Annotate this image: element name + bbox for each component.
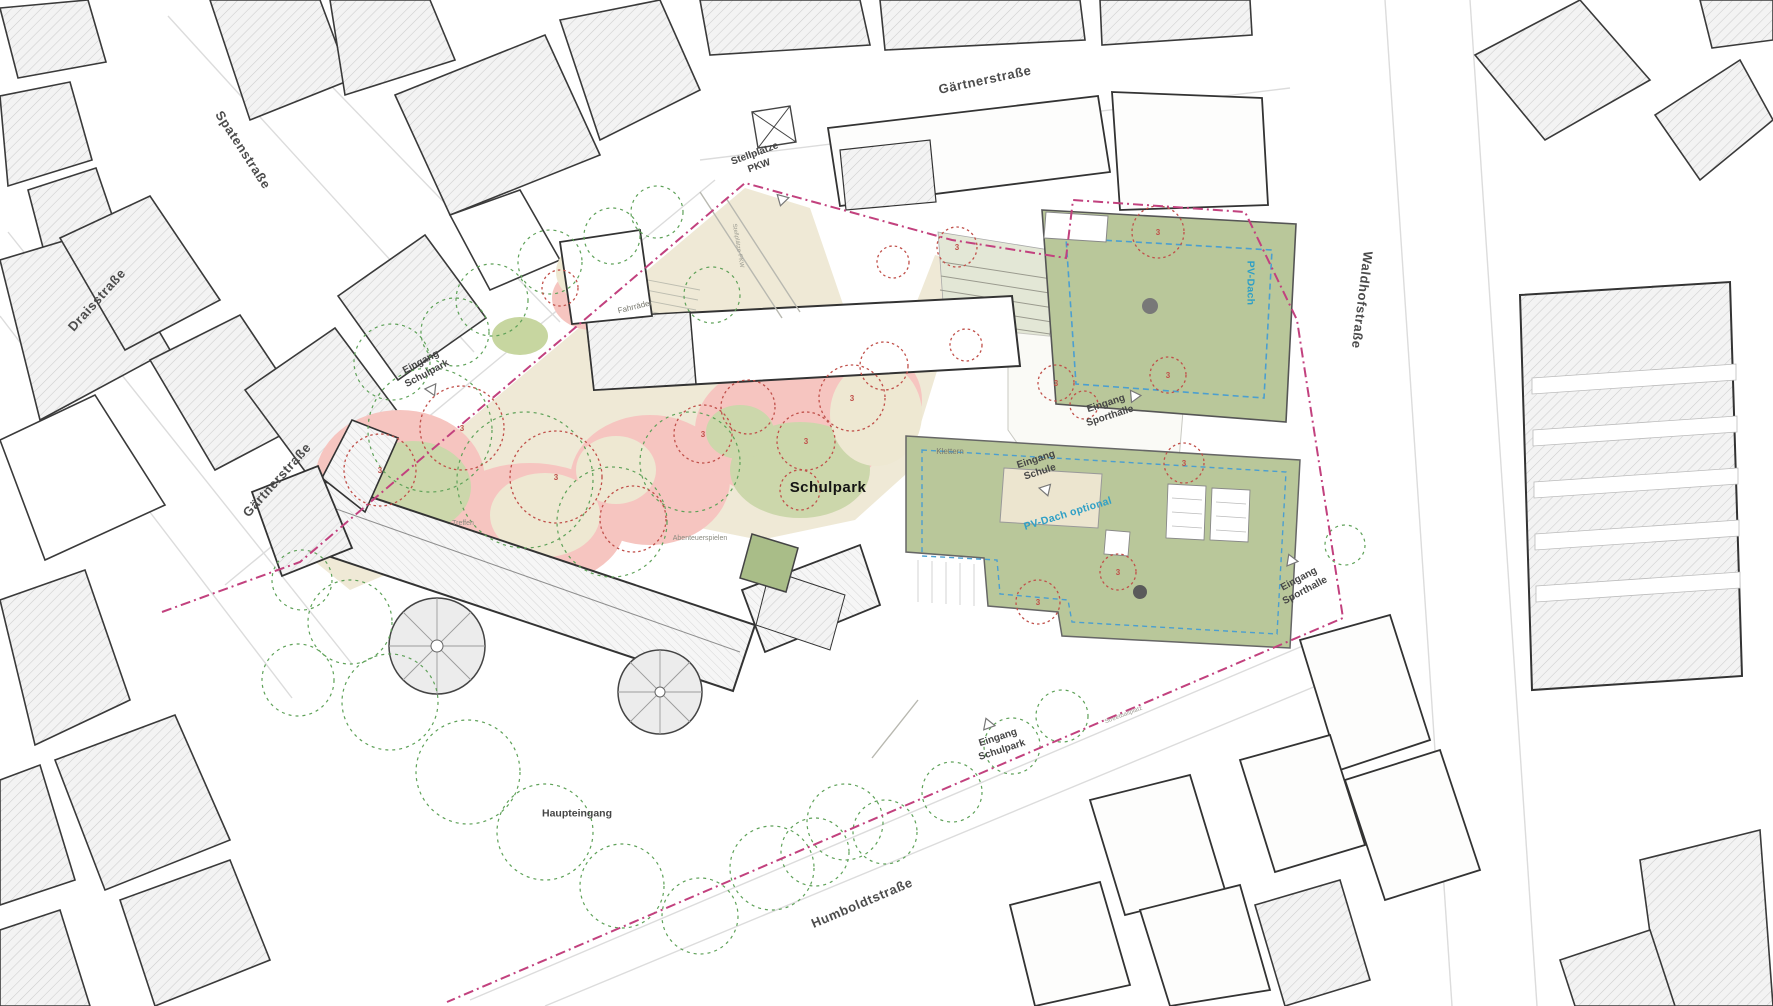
svg-text:3: 3 bbox=[850, 394, 855, 403]
svg-text:3: 3 bbox=[1182, 459, 1187, 468]
svg-text:3: 3 bbox=[1054, 379, 1059, 388]
parking-marks bbox=[918, 560, 974, 606]
school-west-wing bbox=[586, 312, 696, 390]
svg-text:3: 3 bbox=[1166, 371, 1171, 380]
sporthalle-building bbox=[1042, 210, 1296, 422]
svg-text:3: 3 bbox=[378, 466, 383, 475]
svg-text:3: 3 bbox=[701, 430, 706, 439]
svg-text:3: 3 bbox=[1036, 598, 1041, 607]
svg-text:3: 3 bbox=[955, 243, 960, 252]
site-plan-canvas: 3 3 3 3 3 3 3 3 3 3 3 3 3 Spatenstraße D… bbox=[0, 0, 1773, 1006]
green-roof-building bbox=[906, 436, 1300, 648]
svg-text:3: 3 bbox=[804, 437, 809, 446]
svg-text:3: 3 bbox=[1156, 228, 1161, 237]
small-structure bbox=[752, 106, 796, 148]
pavilion-roof-west bbox=[389, 598, 485, 694]
svg-text:3: 3 bbox=[1116, 568, 1121, 577]
rooflight-building bbox=[1520, 282, 1742, 690]
svg-text:3: 3 bbox=[460, 424, 465, 433]
svg-text:3: 3 bbox=[554, 473, 559, 482]
site-plan-drawing: 3 3 3 3 3 3 3 3 3 3 3 3 3 bbox=[0, 0, 1773, 1006]
pavilion-roof-east bbox=[618, 650, 702, 734]
